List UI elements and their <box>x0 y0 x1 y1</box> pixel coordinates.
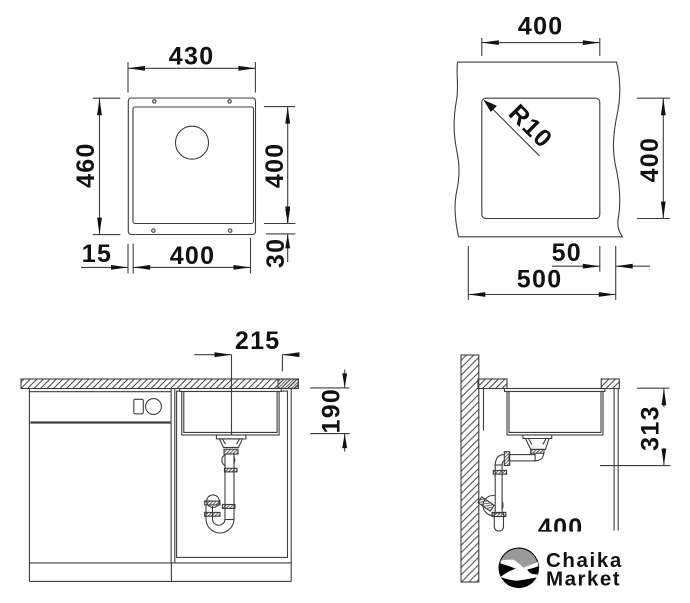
svg-text:215: 215 <box>235 327 281 355</box>
svg-text:500: 500 <box>517 266 563 294</box>
svg-text:400: 400 <box>518 12 564 40</box>
svg-text:190: 190 <box>317 388 345 434</box>
svg-text:400: 400 <box>636 137 664 183</box>
svg-text:400: 400 <box>261 142 289 188</box>
svg-text:50: 50 <box>552 239 582 267</box>
svg-text:30: 30 <box>262 238 290 268</box>
svg-text:313: 313 <box>637 405 665 451</box>
svg-text:430: 430 <box>169 42 215 70</box>
svg-text:460: 460 <box>72 142 100 188</box>
svg-text:400: 400 <box>170 242 216 270</box>
svg-text:15: 15 <box>82 240 112 268</box>
svg-text:Market: Market <box>546 567 621 590</box>
